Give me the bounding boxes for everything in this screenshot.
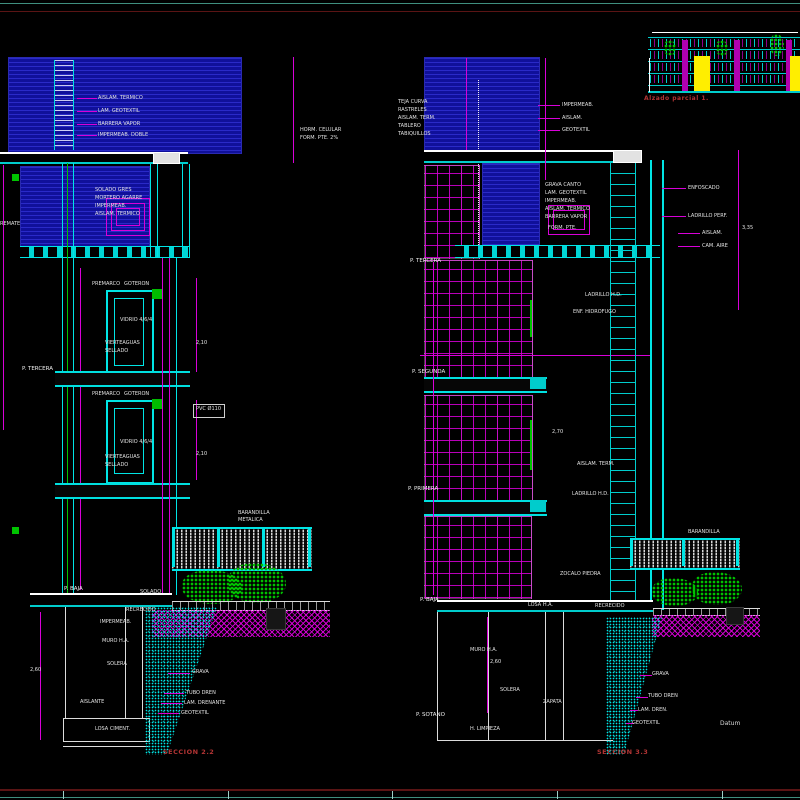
annotation-label: P. BAJA [420,597,439,603]
cad-drawing-canvas: SECCION 2.2 SECCION 3.3 Alzado parcial 1… [0,0,800,800]
annotation-label: ENF. HIDROFUGO [573,310,616,316]
annotation-label: LAM. DRENANTE [184,701,225,707]
annotation-label: ZOCALO PIEDRA [560,572,601,578]
annotation-label: IMPERMEAB. [545,199,576,205]
annotation-label: VIERTEAGUAS [105,455,140,461]
annotation-label: FORM. PTE. 2% [300,136,338,142]
annotation-label: PREMARCO [92,282,120,288]
annotation-label: RASTRELES [398,108,427,114]
annotation-label: SOLERA [500,688,520,694]
annotation-label: IMPERMEAB. [562,103,593,109]
annotation-label: BARRERA VAPOR [98,122,140,128]
annotation-label: 3,35 [742,226,753,232]
annotation-label: P. TERCERA [410,258,441,264]
annotation-label: SELLADO [105,463,128,469]
annotation-label: P. BAJA [64,586,83,592]
annotation-label: LAM. GEOTEXTIL [545,191,587,197]
annotation-label: 2,70 [552,430,563,436]
annotation-label: ENFOSCADO [688,186,720,192]
annotation-label: GOTERON [124,282,149,288]
annotation-label: GRAVA [652,672,669,678]
annotation-label: IMPERMEAB. [95,204,126,210]
annotation-label: GEOTEXTIL [562,128,590,134]
annotation-label: LOSA H.A. [528,603,553,609]
annotation-label: VIDRIO 4/6/4 [120,318,152,324]
annotation-label: TUBO DREN [648,694,678,700]
annotation-label: BARRERA VAPOR [545,215,587,221]
annotation-label: LADRILLO H.D. [585,293,622,299]
annotation-label: AISLAM. [562,116,582,122]
annotation-label: GOTERON [124,392,149,398]
annotation-layer: AISLAM. TERMICOLAM. GEOTEXTILBARRERA VAP… [0,0,800,800]
annotation-label: MURO H.A. [102,639,129,645]
annotation-label: AISLAM. TERM. [577,462,614,468]
annotation-label: GRAVA CANTO [545,183,581,189]
annotation-label: RECRECIDO [595,604,625,610]
annotation-label: TUBO DREN [186,691,216,697]
annotation-label: AISLAM. TERMICO [545,207,590,213]
annotation-label: GEOTEXTIL [632,721,660,727]
annotation-label: 2,60 [30,668,41,674]
annotation-label: SOLADO GRES [95,188,132,194]
annotation-label: P. SOTANO [416,712,445,718]
annotation-label: SELLADO [105,349,128,355]
annotation-label: VIERTEAGUAS [105,341,140,347]
annotation-label: TABLERO [398,124,421,130]
annotation-label: REMATE [0,222,20,228]
annotation-label: LADRILLO PERF. [688,214,727,220]
annotation-label: PVC Ø110 [196,407,221,413]
annotation-label: PREMARCO [92,392,120,398]
annotation-label: AISLANTE [80,700,104,706]
annotation-label: LOSA CIMENT. [95,727,130,733]
annotation-label: P. SEGUNDA [412,369,445,375]
annotation-label: HORM. CELULAR [300,128,341,134]
annotation-label: VIDRIO 4/6/4 [120,440,152,446]
annotation-label: IMPERMEAB. DOBLE [98,133,148,139]
annotation-label: ZAPATA [543,700,562,706]
annotation-label: RECRECIDO [126,608,156,614]
annotation-label: GRAVA [192,670,209,676]
annotation-label: TABIQUILLOS [398,132,431,138]
annotation-label: BARANDILLA [688,530,720,536]
annotation-label: 2,10 [196,452,207,458]
annotation-label: AISLAM. TERMICO [95,212,140,218]
annotation-label: LAM. GEOTEXTIL [98,109,140,115]
annotation-label: AISLAM. [702,231,722,237]
annotation-label: METALICA [238,518,263,524]
annotation-label: AISLAM. TERMICO [98,96,143,102]
annotation-label: 2,10 [196,341,207,347]
annotation-label: TEJA CURVA [398,100,427,106]
annotation-label: AISLAM. TERM. [398,116,435,122]
annotation-label: 2,60 [490,660,501,666]
annotation-label: P. PRIMERA [408,486,438,492]
annotation-label: P. TERCERA [22,366,53,372]
annotation-label: MORTERO AGARRE [95,196,142,202]
annotation-label: LAM. DREN. [638,708,668,714]
annotation-label: MURO H.A. [470,648,497,654]
annotation-label: LADRILLO H.D. [572,492,609,498]
annotation-label: CAM. AIRE [702,244,728,250]
annotation-label: SOLERA [107,662,127,668]
annotation-label: SOLADO [140,590,161,596]
annotation-label: GEOTEXTIL [181,711,209,717]
annotation-label: H. LIMPIEZA [470,727,500,733]
annotation-label: BARANDILLA [238,511,270,517]
annotation-label: IMPERMEAB. [100,620,131,626]
annotation-label: FORM. PTE. [548,226,577,232]
